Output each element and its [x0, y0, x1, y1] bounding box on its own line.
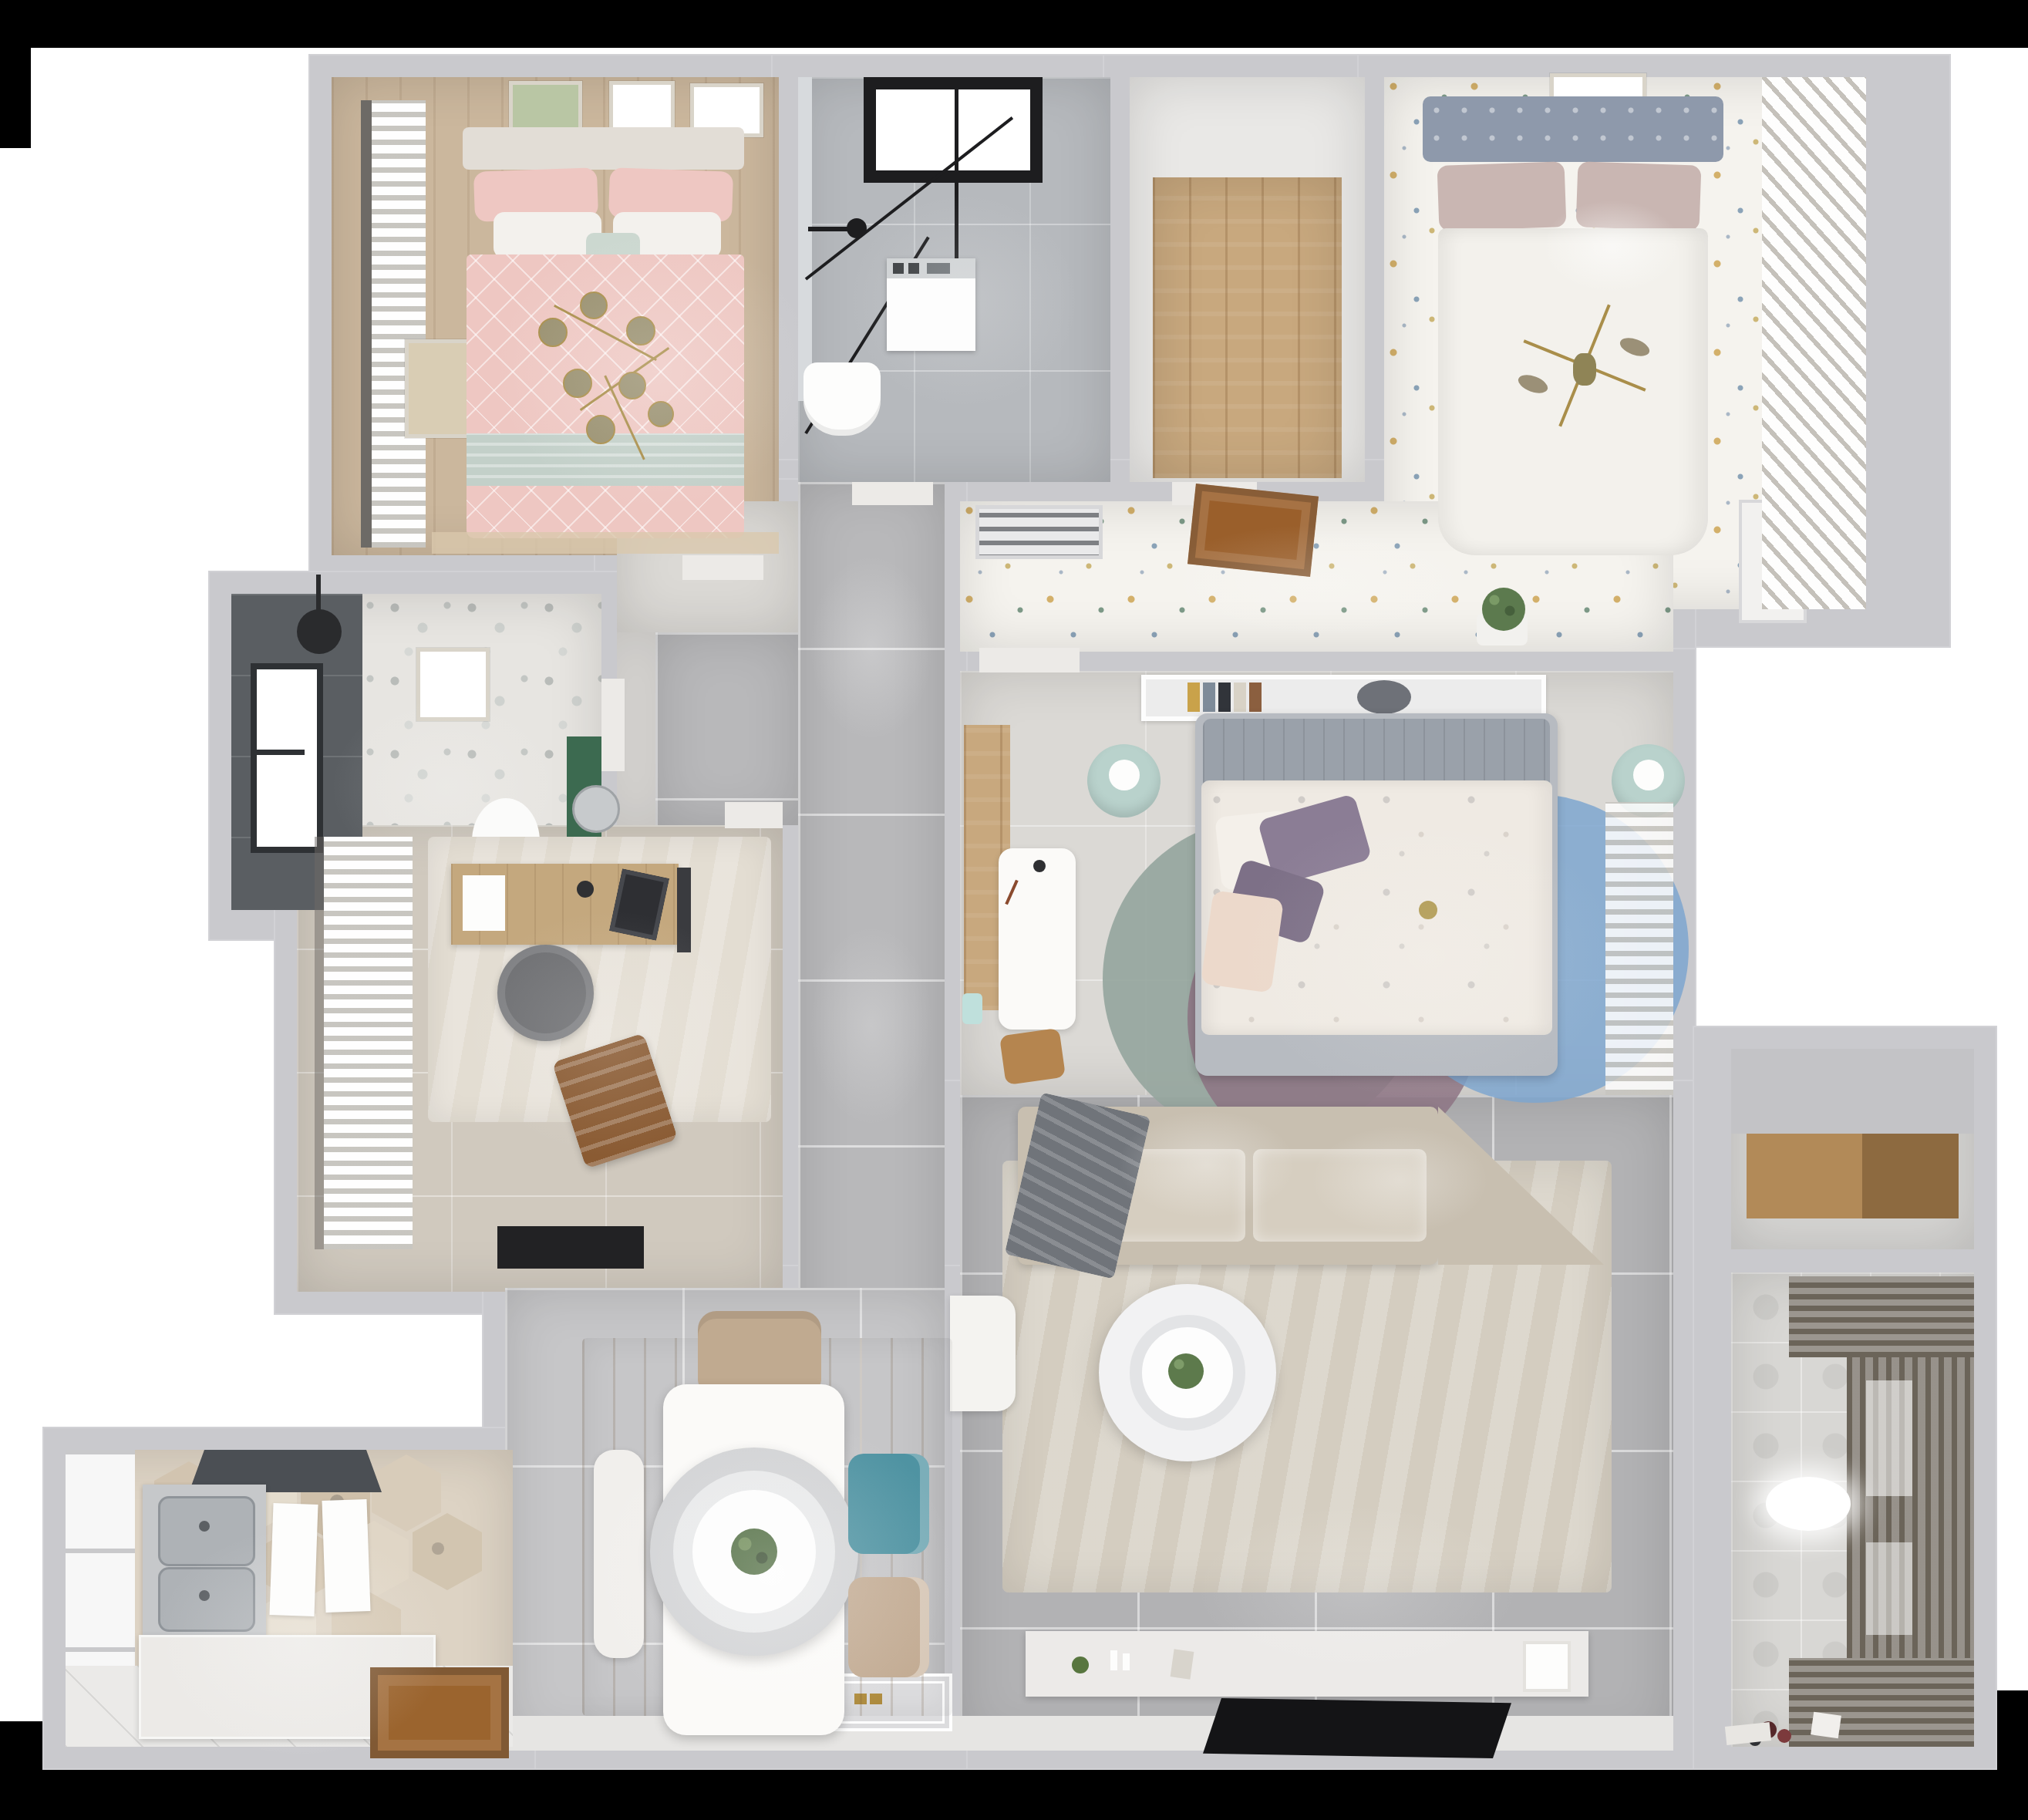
- desk-notebook: [463, 875, 505, 931]
- desk-cup: [577, 881, 594, 898]
- dining-bench: [594, 1450, 644, 1658]
- chandelier-globe: [626, 316, 655, 345]
- hex-motif-dot: [432, 1542, 444, 1555]
- fan-blade: [1516, 372, 1550, 396]
- chandelier-globe: [586, 415, 615, 444]
- round-mirror: [572, 785, 620, 833]
- bed-primary-foot-pink: [467, 486, 744, 538]
- console-candle: [1110, 1650, 1117, 1670]
- black-corner-topleft: [0, 48, 31, 148]
- storage-wood-shelf-left: [1747, 1134, 1862, 1218]
- desk-monitor-edge: [677, 868, 691, 952]
- black-bottom-bar: [0, 1770, 2028, 1820]
- corridor-extension-floor: [655, 632, 798, 825]
- balcony-ceiling-light: [1766, 1477, 1851, 1531]
- fan-blade: [1618, 335, 1652, 359]
- tv-flatscreen: [1203, 1698, 1511, 1758]
- sofa-cushion-2: [1253, 1149, 1427, 1242]
- bed-primary-foot-rug: [432, 532, 779, 554]
- bathroom-guest-art: [416, 648, 490, 721]
- bed-primary-pillow-white-left: [494, 212, 601, 258]
- hall-plant: [1482, 588, 1525, 631]
- shower-pipe: [955, 77, 958, 270]
- chandelier-globe: [538, 318, 568, 347]
- bed-secondary-headboard: [1423, 96, 1723, 162]
- kitchen-door-leaf-wood: [370, 1667, 509, 1758]
- washer-knob: [893, 263, 904, 274]
- walk-in-closet-wood-inset: [1153, 177, 1342, 478]
- corridor-floor: [798, 482, 945, 1369]
- dining-chair-teal: [848, 1454, 929, 1554]
- shelf-book: [1203, 682, 1215, 712]
- kids-desk: [999, 848, 1076, 1030]
- fan-hub: [1573, 353, 1596, 386]
- living-armchair: [950, 1296, 1016, 1411]
- washer-display: [927, 263, 950, 274]
- chandelier-branch: [532, 285, 702, 486]
- bed-kids-pillow-blush: [1201, 890, 1284, 993]
- dining-chair-top: [698, 1311, 821, 1388]
- bathroom-guest-light-stem: [316, 575, 321, 613]
- bed-kids-gold-ornament: [1419, 901, 1437, 919]
- attic-hatch-wood: [1187, 484, 1319, 577]
- storage-wood-shelf-right: [1862, 1134, 1959, 1218]
- sink-basin-top: [158, 1496, 255, 1566]
- bed-secondary-pillow-right: [1576, 161, 1702, 231]
- chandelier-globe: [618, 372, 646, 399]
- drying-rack-top: [1789, 1276, 1974, 1357]
- dining-centerpiece-plant: [731, 1528, 777, 1575]
- bathroom-ensuite-door-gap: [852, 482, 933, 505]
- study-curtain-rod: [315, 837, 324, 1249]
- bedroom-primary-window-art: [405, 339, 473, 438]
- bathroom-guest-window: [251, 663, 323, 853]
- skylight: [864, 77, 1043, 183]
- cutting-board-1: [269, 1503, 318, 1616]
- bed-secondary-pillow-left: [1437, 161, 1567, 231]
- living-pendant-plant: [1168, 1353, 1204, 1389]
- pouf-right-top: [1633, 760, 1664, 790]
- toy-cluster-dot: [1777, 1729, 1791, 1743]
- washing-machine: [887, 258, 975, 351]
- pouf-left-top: [1109, 760, 1140, 790]
- shelf-book: [1234, 682, 1246, 712]
- kids-cup: [962, 993, 982, 1024]
- shelf-book: [1218, 682, 1231, 712]
- bed-primary-headboard: [463, 127, 744, 170]
- window-mullion: [257, 750, 305, 755]
- chandelier-globe: [580, 292, 608, 319]
- shower-glass-edge: [798, 77, 812, 401]
- shelf-book: [1249, 682, 1262, 712]
- study-chair: [497, 945, 594, 1041]
- rack-window-slot-2: [1866, 1542, 1912, 1635]
- dining-chair-beige: [848, 1577, 929, 1677]
- closet-louver-doors: [1762, 77, 1866, 609]
- kids-chair: [999, 1028, 1066, 1085]
- black-top-bar: [0, 0, 2028, 48]
- rack-window-slot-1: [1866, 1380, 1912, 1496]
- toy-box-white: [1811, 1712, 1841, 1739]
- kids-sheer-curtain: [1605, 802, 1673, 1095]
- shower-arm: [808, 227, 854, 231]
- shelf-tray: [1357, 680, 1411, 714]
- sink-drain: [199, 1590, 210, 1601]
- study-door-gap: [725, 802, 783, 828]
- console-plant: [1072, 1657, 1089, 1673]
- bedroom-primary-door-gap: [682, 555, 763, 580]
- cutting-board-2: [322, 1499, 370, 1613]
- toilet-ensuite: [803, 362, 881, 436]
- chandelier-globe: [648, 401, 674, 427]
- curtain-rod: [361, 100, 372, 548]
- chandelier-globe: [563, 369, 592, 398]
- floor-vent-grille: [975, 505, 1103, 559]
- bedroom-primary-curtain: [372, 100, 426, 548]
- bathroom-guest-door-gap: [601, 679, 625, 771]
- console-box: [1523, 1641, 1571, 1692]
- study-curtain: [324, 837, 413, 1249]
- storage-wall-band: [1731, 1049, 1974, 1134]
- study-doormat: [497, 1226, 644, 1269]
- console-frame: [1171, 1649, 1194, 1679]
- console-candle: [1123, 1653, 1130, 1670]
- kids-desk-lamp: [1033, 860, 1046, 872]
- bathroom-guest-ceiling-light: [297, 609, 342, 654]
- shelf-book: [1187, 682, 1200, 712]
- ceiling-fan: [1511, 293, 1658, 440]
- bedroom-kids-door-gap: [979, 648, 1080, 672]
- washer-knob: [908, 263, 919, 274]
- sink-drain: [199, 1521, 210, 1532]
- floor-plan-render: [0, 0, 2028, 1820]
